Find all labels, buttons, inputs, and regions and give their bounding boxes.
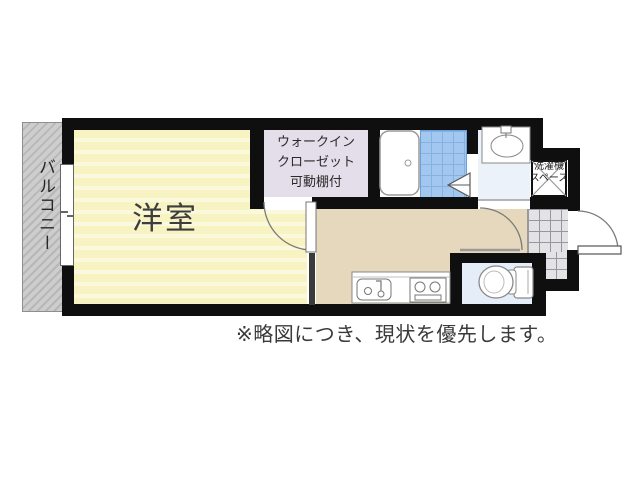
room-kitchen-divider	[309, 253, 315, 305]
wall-bath-washroom	[467, 118, 478, 154]
washer-label-line2: スペース	[525, 173, 573, 185]
western-room-label: 洋室	[115, 201, 215, 237]
window-sash-tick	[61, 211, 68, 213]
walk-in-closet-label: ウォークイン クローゼット 可動棚付	[262, 133, 370, 193]
washer-space-label: 洗濯機 スペース	[525, 161, 573, 185]
wall-washer-bottom	[530, 197, 580, 209]
toilet-room-area	[462, 263, 532, 304]
washer-label-line1: 洗濯機	[525, 161, 573, 173]
front-door-swing	[578, 211, 621, 254]
wall-toilet-top	[450, 253, 543, 263]
wall-closet-bath-bottom	[312, 197, 478, 209]
kitchen-hall-area	[316, 209, 450, 304]
entrance-tiles-lower	[546, 252, 568, 280]
disclaimer-note: ※略図につき、現状を優先します。	[236, 318, 576, 347]
balcony-label: バルコニー	[33, 158, 58, 278]
washroom-area	[478, 130, 530, 199]
wall-entry-bottom	[543, 279, 579, 291]
bathroom-tiles	[420, 130, 467, 198]
entrance-tiles	[527, 209, 568, 253]
closet-door-opening	[264, 197, 312, 210]
closet-label-line1: ウォークイン	[262, 133, 370, 153]
closet-label-line2: クローゼット	[262, 153, 370, 173]
closet-label-line3: 可動棚付	[262, 173, 370, 193]
floorplan: 洋室 バルコニー ウォークイン クローゼット 可動棚付 洗濯機 スペース ※略図…	[0, 0, 640, 480]
wall-bottom	[62, 304, 545, 316]
window-sash-tick	[67, 215, 74, 217]
hallway-area	[450, 209, 527, 253]
wall-toilet-right	[532, 253, 546, 316]
